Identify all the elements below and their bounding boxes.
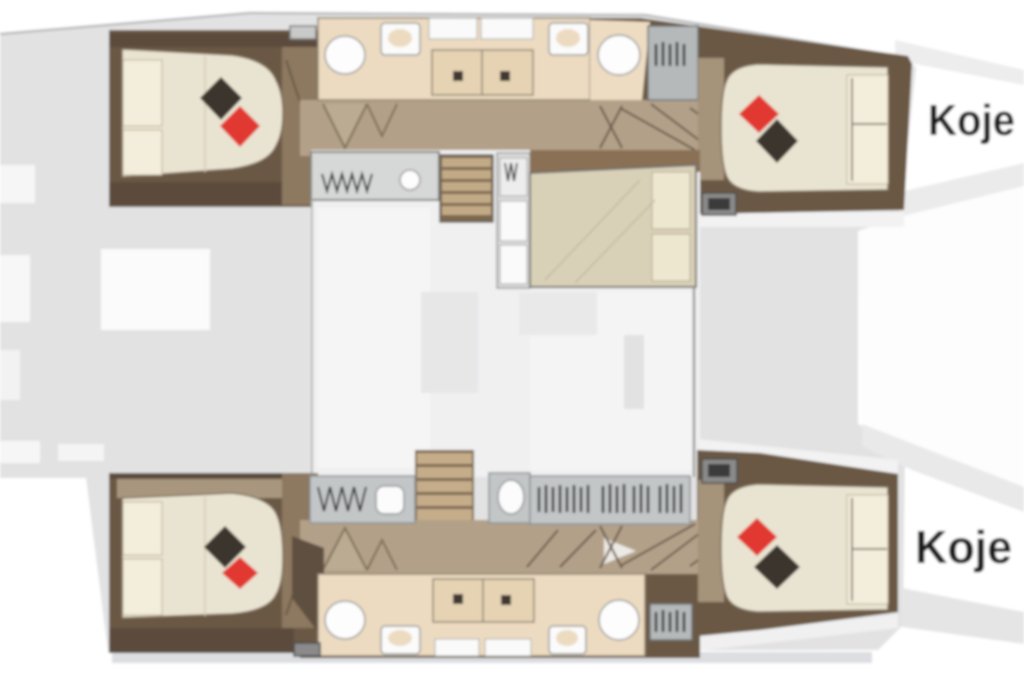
svg-text:Koje: Koje (915, 521, 1012, 573)
svg-text:Koje: Koje (928, 96, 1015, 145)
